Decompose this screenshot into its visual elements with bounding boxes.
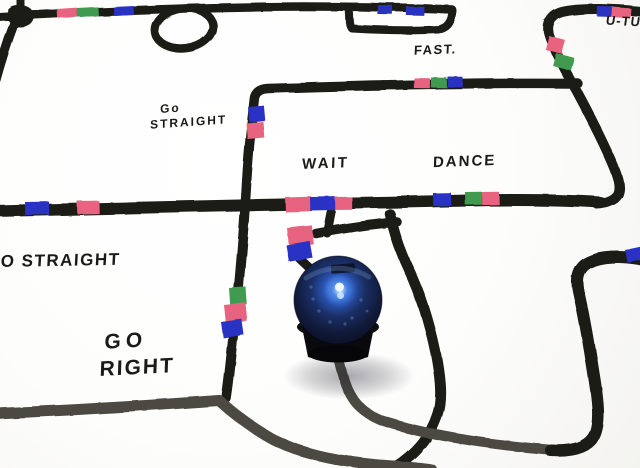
label-text: RIGHT [99, 352, 175, 383]
photo-ozobot-line-maze: Go STRAIGHT FAST. U-TURN WAIT DANCE GO S… [0, 0, 640, 468]
label-go-straight-left: GO STRAIGHT [0, 250, 121, 272]
maze-drawing [0, 0, 640, 468]
label-text: GO STRAIGHT [0, 250, 121, 272]
code-green [465, 192, 482, 205]
robot-led-secondary [337, 292, 344, 299]
code-pink [285, 196, 312, 212]
label-text: DANCE [433, 152, 497, 171]
code-blue [221, 319, 244, 338]
code-pink [335, 197, 352, 210]
label-text: WAIT [302, 154, 350, 173]
code-pink [482, 192, 499, 205]
code-blue [248, 106, 265, 122]
robot-led [335, 283, 344, 292]
code-blue [406, 6, 424, 15]
maze-lines [0, 0, 640, 468]
code-pink [414, 78, 430, 88]
code-green [431, 78, 447, 88]
code-blue [113, 5, 133, 15]
code-blue [433, 193, 451, 206]
robot-base-bottom [308, 346, 368, 363]
label-dance: DANCE [433, 152, 497, 171]
ozobot-robot [283, 256, 415, 400]
line-right-hook [551, 257, 640, 451]
code-blue [625, 246, 640, 262]
code-pink [545, 36, 565, 54]
code-blue [25, 202, 49, 215]
label-u-turn: U-TURN [605, 13, 640, 31]
code-blue [448, 77, 463, 87]
label-go-right: GO RIGHT [99, 325, 176, 383]
label-text: FAST. [414, 41, 458, 58]
label-fast: FAST. [414, 41, 458, 58]
code-blue [378, 6, 393, 15]
code-pink [57, 8, 78, 18]
line-top-right [548, 9, 640, 204]
code-pink [77, 201, 99, 214]
code-green [553, 53, 575, 70]
code-pink [246, 122, 264, 139]
line-top-left-diagonal [0, 24, 14, 80]
line-bottom-left [0, 401, 219, 414]
label-text: GO [104, 325, 176, 356]
code-blue [310, 197, 335, 211]
code-green [77, 7, 98, 17]
label-wait: WAIT [302, 154, 350, 173]
label-go-straight-top: Go STRAIGHT [150, 97, 227, 132]
label-text: U-TURN [605, 13, 640, 31]
